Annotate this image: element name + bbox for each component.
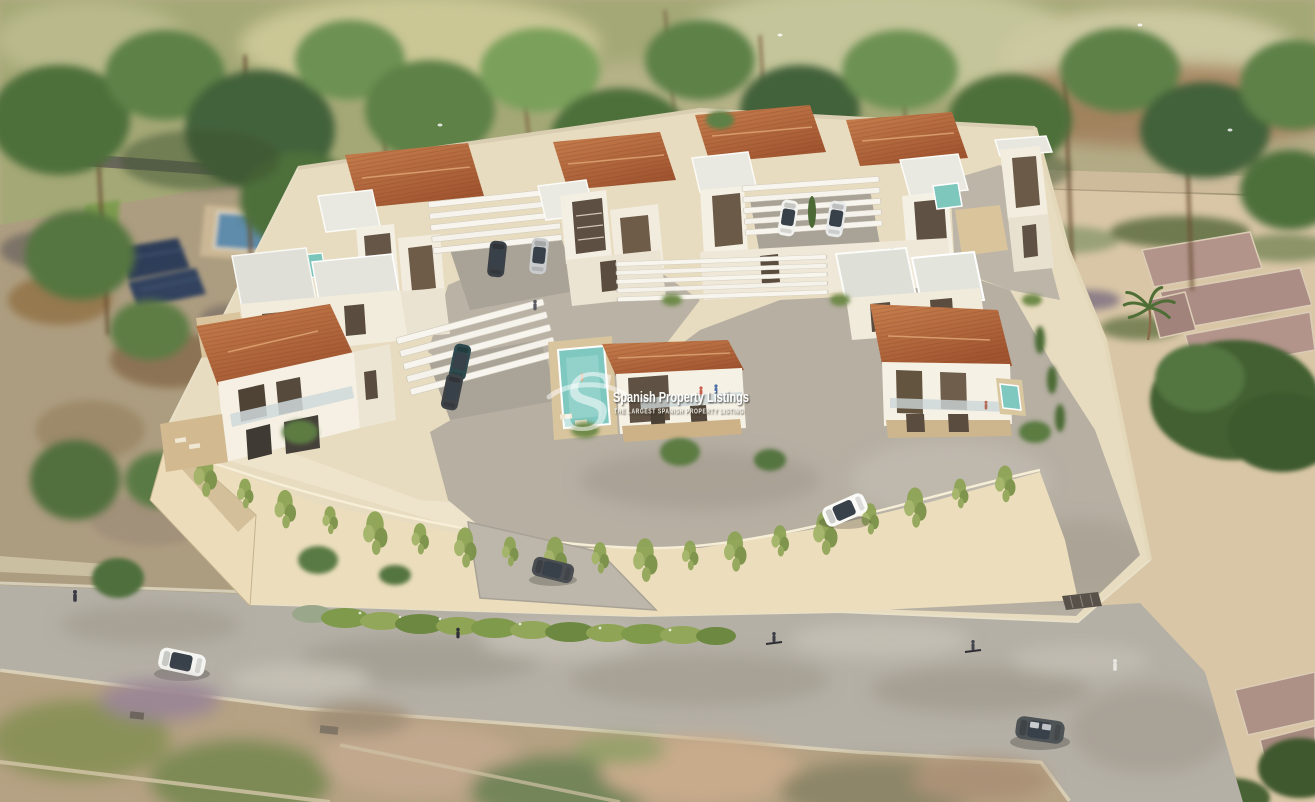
- street-tree: [92, 558, 144, 598]
- garden-shrub: [754, 449, 786, 471]
- pedestrian-left-road: [73, 590, 77, 602]
- stair-opening: [572, 198, 606, 254]
- pool-front-right: [1000, 384, 1021, 410]
- roof-tiles: [870, 304, 1012, 366]
- window: [344, 304, 366, 336]
- aerial-structure: [130, 711, 145, 719]
- side-deck: [955, 205, 1008, 256]
- terrace-deck: [160, 414, 228, 472]
- watermark-title: Spanish Property Listings: [613, 389, 749, 406]
- pedestrian-entrance: [1113, 659, 1117, 671]
- aerial-render: S Spanish Property Listings THE LARGEST …: [0, 0, 1315, 802]
- flat-roof-slab: [318, 190, 380, 232]
- minivan-roof-window: [1030, 721, 1040, 728]
- door: [906, 414, 925, 432]
- person-terrace: [985, 401, 988, 410]
- watermark-logo-s: S: [561, 359, 614, 449]
- tower-window: [408, 245, 436, 291]
- pool-back-right: [933, 183, 962, 209]
- garden-shrub: [282, 420, 318, 444]
- tower-opening: [1012, 156, 1040, 208]
- garden-shrub: [660, 438, 700, 466]
- minivan-roof-window: [1042, 723, 1052, 730]
- door: [600, 260, 618, 292]
- pedestrian-road: [456, 628, 460, 639]
- cypress-tree: [808, 196, 816, 228]
- door: [948, 414, 969, 432]
- person-inner-street: [533, 300, 537, 311]
- window: [246, 424, 272, 460]
- tower-opening: [712, 193, 743, 247]
- door: [364, 370, 378, 400]
- garden-shrub: [1019, 421, 1051, 443]
- watermark-tagline: THE LARGEST SPANISH PROPERTY LISTING: [614, 407, 744, 416]
- window: [1022, 224, 1038, 258]
- render-canvas: S Spanish Property Listings THE LARGEST …: [0, 0, 1315, 802]
